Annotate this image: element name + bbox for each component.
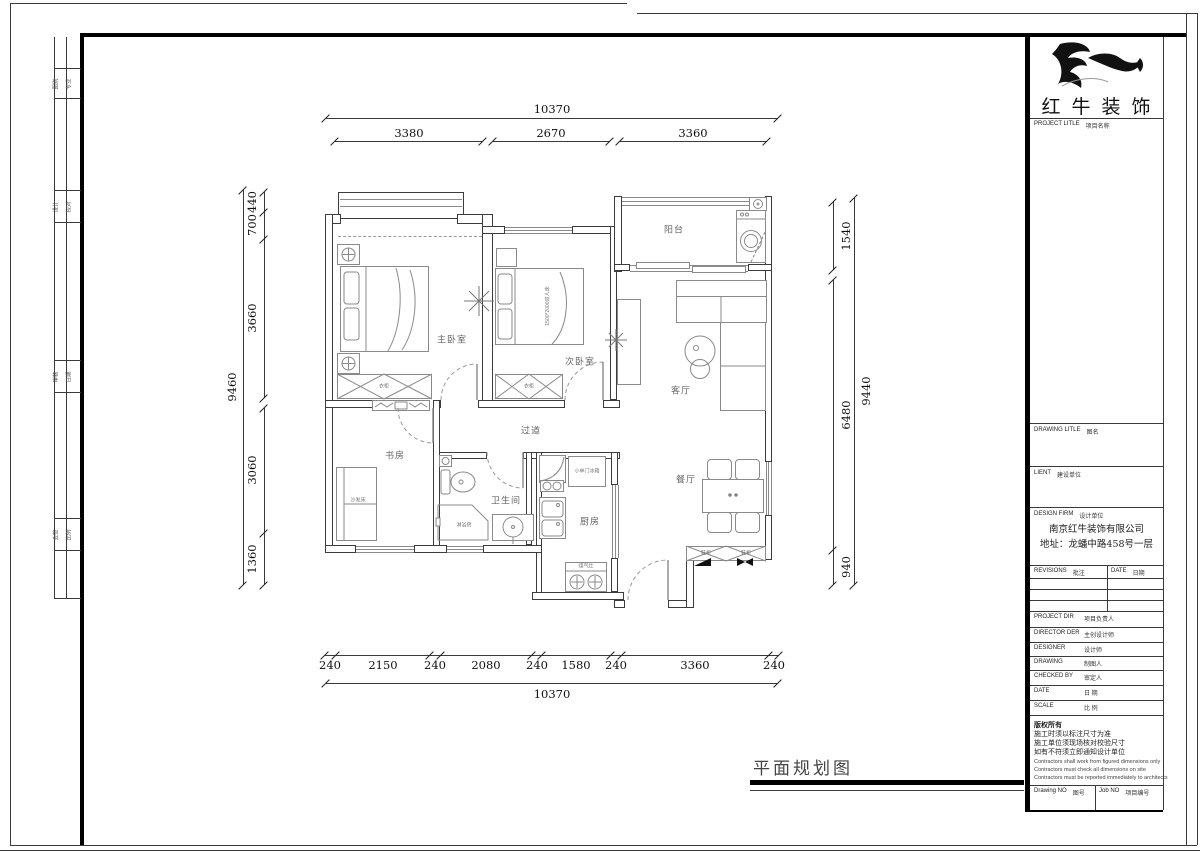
titleblock-line [1095, 785, 1096, 810]
wall [603, 400, 620, 408]
dim-line [620, 141, 767, 142]
strip-line [54, 360, 81, 361]
dim-label: 2670 [516, 126, 586, 140]
frame-line [80, 33, 84, 845]
wall [325, 214, 333, 553]
dim-label: 10370 [517, 687, 587, 701]
wall [478, 400, 565, 408]
strip-line [54, 98, 81, 99]
field-checked-by: CHECKED BY 审定人 [1034, 673, 1102, 682]
field-director: DIRECTOR DER 主创设计师 [1034, 630, 1114, 639]
dim-line [833, 280, 834, 585]
field-drawing-person: DRAWING 制图人 [1034, 659, 1102, 668]
master-bed [340, 266, 429, 352]
room-label-balcony: 阳台 [664, 223, 684, 236]
dim-label: 10370 [517, 102, 587, 116]
stove-label: 煤气灶 [578, 563, 593, 570]
field-designer: DESIGNER 设计师 [1034, 645, 1102, 654]
gas-meter [540, 480, 564, 492]
field-drawing-no: Drawing NO 图号 [1034, 788, 1085, 797]
border-line [10, 3, 627, 4]
firm-address: 地址：龙蟠中路458号一层 [1030, 536, 1163, 550]
field-en: DATE [1111, 568, 1127, 577]
field-cn: 日 期 [1084, 688, 1098, 697]
field-en: Drawing NO [1034, 788, 1067, 797]
company-logo [1052, 42, 1143, 88]
field-en: DRAWING [1034, 659, 1078, 668]
field-drawing-title: DRAWING LITLE 图名 [1034, 427, 1098, 436]
titleblock-line [1030, 507, 1163, 508]
field-cn: 项目名称 [1086, 121, 1110, 130]
dim-label: 3360 [658, 126, 728, 140]
border-line [0, 850, 1200, 851]
dim-label: 700 [245, 190, 259, 260]
wall [765, 196, 772, 462]
note-cn: 如有不符须立即通知设计单位 [1034, 747, 1125, 757]
strip-line [54, 518, 81, 519]
dim-label: 9460 [225, 352, 239, 422]
wall [482, 226, 505, 234]
field-en: PROJECT DIR [1034, 614, 1078, 623]
field-project-dir: PROJECT DIR 项目负责人 [1034, 614, 1114, 623]
strip-label: 审核 [52, 371, 60, 382]
dim-label: 6480 [839, 380, 853, 450]
titleblock-line [1030, 785, 1163, 786]
window-line [340, 199, 462, 200]
field-en: DESIGN FIRM [1034, 511, 1073, 520]
tv-cabinet [617, 299, 641, 385]
titleblock-line [1030, 627, 1163, 628]
dresser [372, 400, 430, 411]
room-label-second: 次卧室 [565, 355, 595, 368]
note-en: Contractors must check all dimensions on… [1034, 767, 1146, 773]
sofa-bed [336, 467, 377, 541]
shower-label: 淋浴房 [456, 522, 471, 529]
note-en: Contractors must be reported immediately… [1034, 775, 1168, 781]
wall [433, 400, 440, 552]
field-en: REVISIONS [1034, 568, 1067, 577]
field-en: DESIGNER [1034, 645, 1078, 654]
dim-line [326, 683, 778, 684]
window-line [447, 552, 483, 553]
strip-label: 日期 [65, 371, 73, 382]
window-line [505, 230, 572, 231]
field-cn: 图号 [1073, 788, 1085, 797]
plan-detail-layer: 1500*2000双人床 [0, 0, 1200, 852]
wall [532, 592, 624, 600]
window-line [615, 485, 616, 558]
field-en: PROJECT LITLE [1034, 121, 1080, 130]
titleblock-line [1030, 466, 1163, 467]
window-line [771, 462, 772, 515]
window-line [622, 205, 765, 206]
dim-line [264, 408, 265, 585]
field-scale: SCALE 比 例 [1034, 703, 1098, 712]
dim-line [493, 141, 610, 142]
dim-label: 9440 [859, 356, 873, 426]
titleblock-line [1030, 670, 1163, 671]
window-line [618, 485, 619, 558]
field-cn: 日期 [1133, 568, 1145, 577]
dim-label: 1360 [245, 524, 259, 594]
window-line [505, 227, 572, 228]
dim-line [833, 202, 834, 270]
chair [707, 459, 732, 480]
window-line [612, 485, 613, 558]
window-line [622, 201, 765, 202]
wall [614, 264, 630, 271]
titleblock-line [1030, 642, 1163, 643]
title-underline [750, 780, 1024, 785]
field-cn: 比 例 [1084, 703, 1098, 712]
dim-line [325, 655, 779, 656]
strip-line [66, 37, 67, 598]
strip-label: 比例 [65, 529, 73, 540]
shoe-cabinet [686, 546, 766, 561]
titleblock-line [1030, 565, 1163, 566]
wall [482, 214, 493, 408]
field-en: DATE [1034, 688, 1078, 697]
dim-label: 3060 [245, 435, 259, 505]
room-label-bath: 卫生间 [491, 494, 521, 507]
titleblock-line [1163, 37, 1164, 810]
dim-label: 240 [739, 658, 809, 672]
window-line [356, 546, 414, 547]
sliding-door-panel [692, 266, 746, 273]
titleblock-line [1107, 565, 1108, 611]
border-line [10, 3, 11, 845]
balcony-sink [749, 197, 767, 211]
dim-line [326, 118, 778, 119]
nightstand [337, 244, 360, 265]
dining-table [702, 479, 764, 513]
strip-line [54, 190, 81, 191]
nightstand [337, 353, 360, 374]
nightstand [496, 248, 517, 267]
wall [748, 264, 772, 271]
sofa-bed-label: 沙发床 [350, 497, 365, 504]
plan-title: 平面规划图 [753, 754, 853, 779]
wall [611, 452, 618, 485]
strip-line [54, 222, 81, 223]
titleblock-line [1030, 423, 1163, 424]
titleblock-line [1030, 715, 1163, 716]
wall [611, 558, 618, 592]
wall [614, 196, 622, 272]
curtain-line [338, 236, 482, 237]
wall [765, 515, 772, 560]
room-label-dining: 餐厅 [676, 473, 696, 486]
strip-line [54, 550, 81, 551]
strip-label: 校对 [65, 201, 73, 212]
field-en: CHECKED BY [1034, 673, 1078, 682]
window-line [447, 549, 483, 550]
titleblock-line [1030, 685, 1163, 686]
field-cn: 设计师 [1084, 645, 1102, 654]
border-line [637, 13, 1197, 14]
window-line [622, 197, 765, 198]
shoe-label: 鞋柜 [741, 550, 751, 557]
chair [735, 459, 760, 480]
strip-label: 设计 [52, 201, 60, 212]
window-line [356, 549, 414, 550]
window-line [447, 546, 483, 547]
field-client: LIENT 建设单位 [1034, 470, 1081, 479]
field-en: DRAWING LITLE [1034, 427, 1080, 436]
field-cn: 设计单位 [1079, 511, 1103, 520]
dim-line [243, 190, 244, 585]
field-en: LIENT [1034, 470, 1051, 479]
room-label-study: 书房 [385, 449, 405, 462]
field-project-title: PROJECT LITLE 项目名称 [1034, 121, 1110, 130]
room-label-kitchen: 厨房 [580, 515, 600, 528]
blueprint-sheet: 图别 专业 设计 校对 审核 日期 会签 比例 [0, 0, 1200, 852]
dim-label: 3660 [245, 283, 259, 353]
field-revisions: REVISIONS 批注 [1034, 568, 1085, 577]
field-cn: 制图人 [1084, 659, 1102, 668]
dim-label: 3360 [660, 658, 730, 672]
dim-line [264, 192, 265, 398]
note-en: Contractors shall work from figured dime… [1034, 759, 1160, 765]
sofa-back [676, 280, 767, 297]
wall [614, 600, 625, 608]
strip-label: 会签 [52, 529, 60, 540]
field-cn: 建设单位 [1057, 470, 1081, 479]
sofa-seat [676, 296, 767, 323]
strip-label: 专业 [65, 78, 73, 89]
shoe-label: 鞋柜 [701, 550, 711, 557]
strip-line [54, 598, 81, 599]
wall [414, 545, 447, 553]
field-job-no: Job NO 项目编号 [1099, 788, 1149, 797]
titleblock-line [1030, 611, 1163, 612]
titleblock-line [1030, 700, 1163, 701]
titleblock-line [1030, 600, 1163, 601]
field-date: DATE 日 期 [1034, 688, 1098, 697]
frame-line [80, 33, 1186, 37]
washbasin-counter [492, 514, 534, 541]
window-line [766, 462, 767, 515]
border-line [10, 845, 1197, 846]
dim-label: 240 [581, 658, 651, 672]
strip-line [54, 37, 55, 598]
field-cn: 图名 [1086, 427, 1098, 436]
titleblock-line [1030, 578, 1163, 579]
sliding-door-panel [636, 262, 690, 269]
field-cn: 批注 [1073, 568, 1085, 577]
field-en: DIRECTOR DER [1034, 630, 1078, 639]
strip-label: 图别 [52, 78, 60, 89]
wardrobe-label: 衣柜 [524, 383, 534, 390]
chair [707, 512, 732, 533]
kitchen-sink [539, 497, 566, 539]
window-line [340, 206, 462, 207]
room-label-corridor: 过道 [521, 424, 541, 437]
strip-line [54, 392, 81, 393]
strip-line [54, 68, 81, 69]
washing-machine [736, 210, 766, 263]
dim-line [335, 141, 483, 142]
field-en: Job NO [1099, 788, 1119, 797]
sofa-chaise [720, 322, 766, 411]
firm-name: 南京红牛装饰有限公司 [1030, 521, 1163, 535]
room-label-master: 主卧室 [437, 333, 467, 346]
wardrobe-label: 衣柜 [379, 383, 389, 390]
chair [735, 512, 760, 533]
dim-label: 940 [839, 532, 853, 602]
dim-label: 3380 [374, 126, 444, 140]
titleblock-line [1030, 656, 1163, 657]
field-cn: 主创设计师 [1084, 630, 1114, 639]
field-cn: 项目负责人 [1084, 614, 1114, 623]
field-date-col: DATE 日期 [1111, 568, 1145, 577]
titleblock-line [1030, 810, 1163, 812]
company-name: 红牛装饰 [1032, 92, 1163, 119]
window-line [356, 552, 414, 553]
title-underline-thin [750, 790, 1024, 791]
border-line [1197, 13, 1198, 845]
border-line [1186, 13, 1187, 845]
floor-drain [439, 455, 452, 467]
field-cn: 审定人 [1084, 673, 1102, 682]
second-bed [495, 268, 584, 345]
field-design-firm: DESIGN FIRM 设计单位 [1034, 511, 1103, 520]
fridge-label: 小单门冰箱 [574, 468, 599, 475]
corner-cabinet [539, 455, 566, 483]
window-line [768, 462, 769, 515]
wall [483, 545, 542, 553]
titleblock-line [1030, 589, 1163, 590]
dim-line [854, 198, 855, 585]
dim-label: 1540 [839, 201, 853, 271]
room-label-living: 客厅 [671, 384, 691, 397]
field-cn: 项目编号 [1125, 788, 1149, 797]
window-line [505, 233, 572, 234]
field-en: SCALE [1034, 703, 1078, 712]
wall [325, 545, 356, 553]
